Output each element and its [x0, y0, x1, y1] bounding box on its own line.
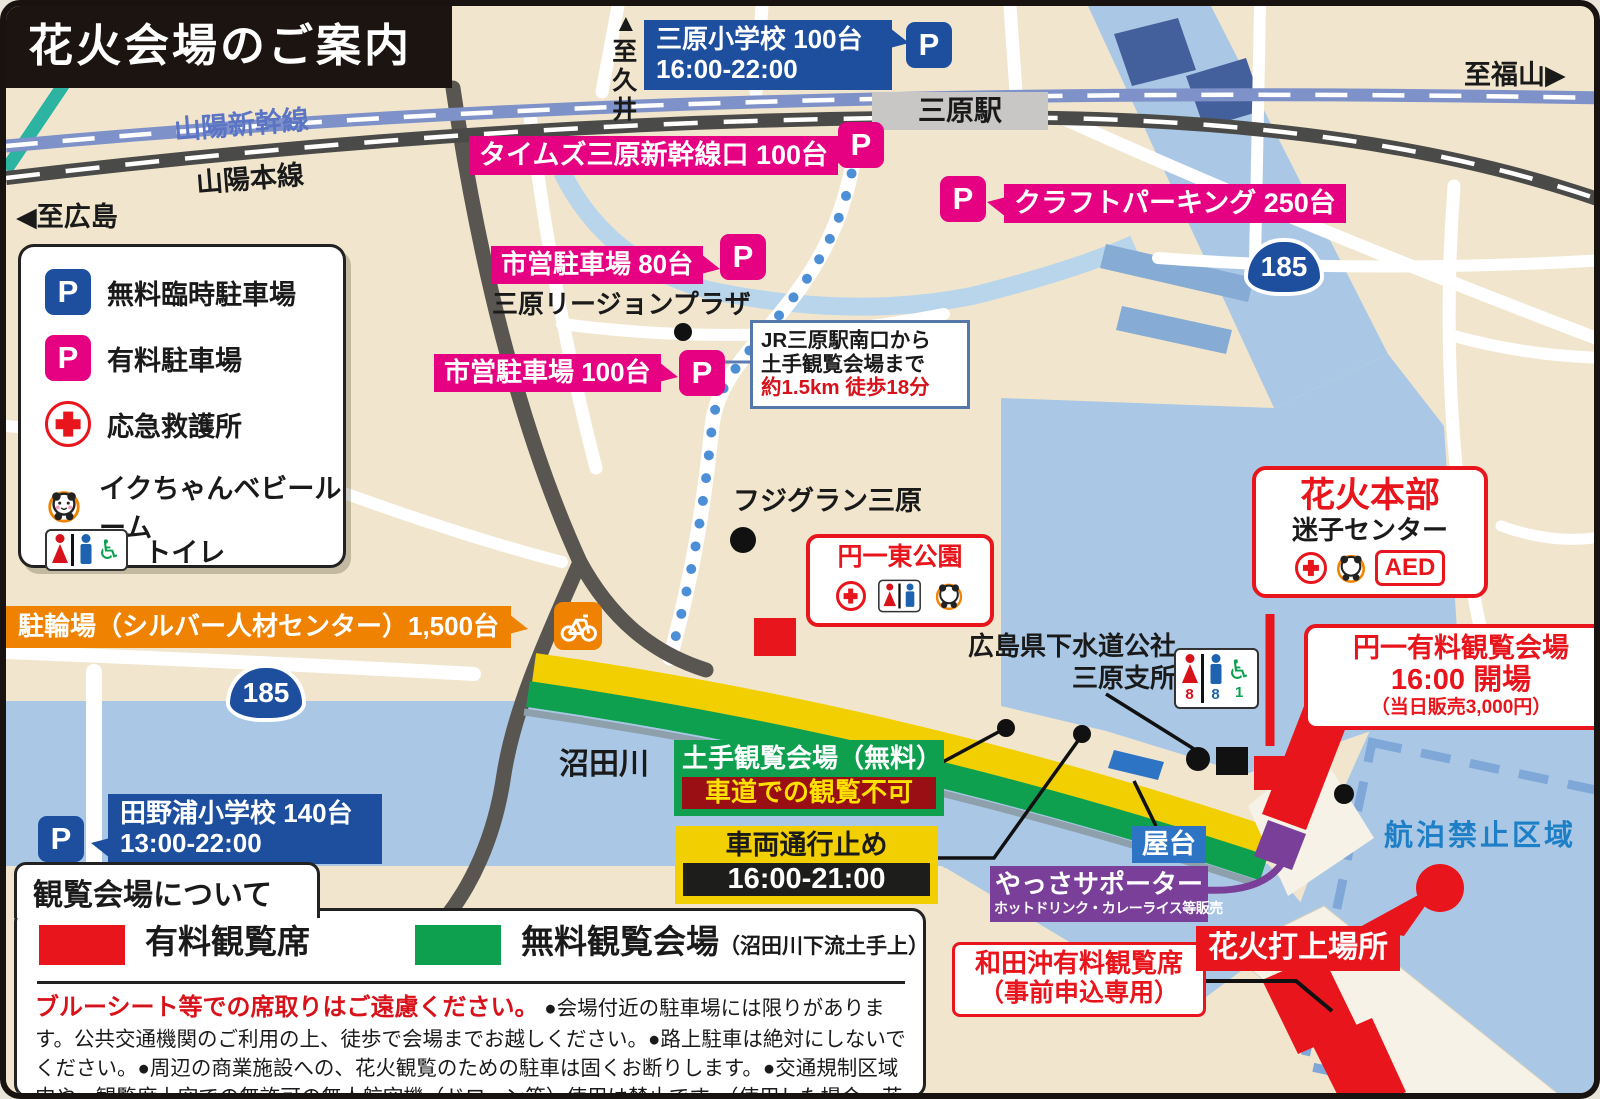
ennichi-paid-callout: 円一有料観覧会場 16:00 開場 （当日販売3,000円）: [1304, 624, 1600, 730]
parking-paid-icon: P: [838, 122, 884, 168]
place-fujigran: フジグラン三原: [733, 486, 922, 517]
ennichi-paid-name: 円一有料観覧会場: [1312, 633, 1600, 664]
hq-icons: AED: [1262, 550, 1478, 586]
riverside-toilet-sign: 8 8 ♿ 1: [1174, 648, 1259, 709]
free-area-note: （沼田川下流土手上）: [719, 935, 929, 958]
toilet-icon: ♿: [45, 529, 128, 571]
parking-paid-icon: P: [45, 335, 91, 381]
first-aid-icon: [836, 581, 866, 611]
direction-kui: 至久井: [608, 38, 637, 125]
panel-divider: [37, 981, 905, 984]
yassa-title: やっさサポーター: [994, 870, 1204, 900]
ennichi-paid-open: 16:00 開場: [1312, 664, 1600, 697]
hq-title: 花火本部: [1262, 476, 1478, 516]
parking-paid-icon: P: [940, 176, 986, 222]
parking-free-mihara: 三原小学校 100台 16:00-22:00: [644, 20, 892, 90]
direction-hiroshima: ◀至広島: [16, 202, 118, 233]
wheelchair-icon: ♿: [97, 537, 121, 564]
parking-paid-times: タイムズ三原新幹線口 100台: [469, 136, 838, 175]
bank-dot-2: [1073, 725, 1091, 743]
road-closed-hours: 16:00-21:00: [683, 863, 930, 896]
mascot-icon: [933, 580, 965, 612]
toilet-accessible-count: ♿ 1: [1227, 657, 1251, 701]
female-icon: [1182, 654, 1197, 686]
parking-free-icon: P: [906, 22, 952, 68]
parking-free-tanoura-name: 田野浦小学校 140台: [120, 799, 370, 829]
parking-paid-craft: クラフトパーキング 250台: [1004, 184, 1346, 223]
walk-info-distance: 約1.5km 徒歩18分: [761, 376, 959, 400]
bank-free-box: 土手観覧会場（無料） 車道での観覧不可: [674, 740, 944, 816]
mascot-icon: [1334, 551, 1368, 585]
legend-item-first-aid: 応急救護所: [45, 401, 242, 447]
place-region-plaza: 三原リージョンプラザ: [492, 290, 751, 320]
male-icon: [1208, 654, 1223, 686]
direction-kui-arrow: ▲: [614, 10, 638, 38]
divider: [898, 583, 900, 608]
parking-free-tanoura-hours: 13:00-22:00: [120, 829, 370, 859]
walk-info-box: JR三原駅南口から 土手観覧会場まで 約1.5km 徒歩18分: [750, 320, 970, 409]
wadaoki-note: （事前申込専用）: [957, 979, 1201, 1008]
bank-dot-1: [997, 719, 1015, 737]
map-legend: P 無料臨時駐車場 P 有料駐車場 応急救護所 イクちゃんベビールーム: [18, 244, 346, 568]
bicycle-parking-label: 駐輪場（シルバー人材センター）1,500台: [6, 606, 511, 648]
fireworks-venue-map: 花火会場のご案内 ▲ 至久井 至福山▶ ◀至広島 山陽新幹線 山陽本線 三原駅 …: [0, 0, 1600, 1099]
launch-point-icon: [1416, 864, 1464, 912]
legend-label: トイレ: [144, 531, 225, 570]
yatai-label: 屋台: [1132, 826, 1206, 863]
toilet-female-count: 8: [1182, 654, 1197, 703]
enichi-park-name: 円一東公園: [814, 543, 986, 572]
female-icon: [52, 534, 67, 566]
place-river: 沼田川: [559, 748, 649, 783]
bank-free-label: 土手観覧会場（無料）: [682, 744, 936, 774]
road-closed-label: 車両通行止め: [683, 830, 930, 861]
legend-label: 応急救護所: [107, 405, 242, 444]
legend-item-toilet: ♿ トイレ: [45, 529, 225, 571]
parking-paid-icon: P: [679, 350, 725, 396]
legend-label: 無料臨時駐車場: [107, 273, 296, 312]
yassa-box: やっさサポーター ホットドリンク・カレーライス等販売: [990, 866, 1208, 922]
parking-free-icon: P: [38, 816, 84, 862]
wadaoki-box: 和田沖有料観覧席 （事前申込専用）: [952, 942, 1206, 1017]
legend-label: 有料駐車場: [107, 339, 242, 378]
sewer-office-marker: [1216, 747, 1248, 775]
place-sewer-office-2: 三原支所: [1072, 664, 1176, 694]
first-aid-icon: [1295, 552, 1327, 584]
hq-callout: 花火本部 迷子センター AED: [1252, 466, 1488, 598]
hq-subtitle: 迷子センター: [1262, 516, 1478, 546]
direction-fukuyama: 至福山▶: [1464, 60, 1566, 91]
info-panel: 有料観覧席 無料観覧会場（沼田川下流土手上） ブルーシート等での席取りはご遠慮く…: [14, 908, 926, 1098]
fujigran-dot: [730, 527, 756, 553]
bicycle-icon: [554, 602, 602, 650]
parking-free-tanoura: 田野浦小学校 140台 13:00-22:00: [108, 794, 382, 864]
station-label: 三原駅: [872, 92, 1048, 130]
legend-item-paid-parking: P 有料駐車場: [45, 335, 242, 381]
male-icon: [903, 583, 915, 608]
legend-item-free-parking: P 無料臨時駐車場: [45, 269, 296, 315]
parking-paid-city100: 市営駐車場 100台: [434, 354, 661, 392]
walk-info-line1: JR三原駅南口から: [761, 329, 959, 353]
parking-free-icon: P: [45, 269, 91, 315]
yatai-marker: [1108, 750, 1164, 780]
road-closed-box: 車両通行止め 16:00-21:00: [675, 826, 938, 904]
notes-lead: ブルーシート等での席取りはご遠慮ください。: [35, 994, 539, 1021]
free-area-label: 無料観覧会場（沼田川下流土手上）: [521, 923, 929, 961]
female-icon: [883, 583, 895, 608]
aed-icon: AED: [1375, 550, 1446, 586]
paid-seat-swatch: [39, 925, 125, 965]
enichi-park-callout: 円一東公園: [806, 534, 994, 627]
place-sewer-office-1: 広島県下水道公社: [968, 632, 1176, 662]
teal-road: [6, 84, 64, 170]
free-area-swatch: [415, 925, 501, 965]
wadaoki-name: 和田沖有料観覧席: [957, 949, 1201, 979]
divider: [71, 534, 74, 566]
paid-seat-label: 有料観覧席: [145, 923, 310, 961]
mascot-icon: [45, 483, 83, 529]
toilet-male-count: 8: [1208, 654, 1223, 703]
ennichi-paid-price: （当日販売3,000円）: [1312, 697, 1600, 719]
panel-notes: ブルーシート等での席取りはご遠慮ください。 ●会場付近の駐車場には限りがあります…: [35, 991, 909, 1099]
parking-paid-icon: P: [720, 234, 766, 280]
hq-marker: [1254, 756, 1292, 790]
enichi-park-icons: [814, 575, 986, 617]
parking-free-mihara-hours: 16:00-22:00: [656, 55, 880, 85]
region-plaza-dot: [674, 323, 692, 341]
parking-free-mihara-name: 三原小学校 100台: [656, 25, 880, 55]
male-icon: [78, 534, 93, 566]
info-panel-heading: 観覧会場について: [14, 862, 320, 918]
no-anchor-zone-label: 航泊禁止区域: [1384, 820, 1576, 853]
wheelchair-icon: ♿: [1227, 657, 1251, 684]
page-title: 花火会場のご案内: [6, 6, 452, 88]
parking-paid-city80: 市営駐車場 80台: [491, 246, 703, 284]
yassa-note: ホットドリンク・カレーライス等販売: [994, 900, 1204, 916]
bank-dot-3: [1186, 747, 1210, 771]
toilet-icon: [878, 579, 921, 612]
first-aid-icon: [45, 401, 91, 447]
walk-info-line2: 土手観覧会場まで: [761, 353, 959, 377]
divider: [1201, 654, 1204, 703]
launch-site-label: 花火打上場所: [1196, 926, 1400, 971]
bank-free-warning: 車道での観覧不可: [682, 777, 936, 809]
enichi-park-marker: [754, 618, 796, 656]
